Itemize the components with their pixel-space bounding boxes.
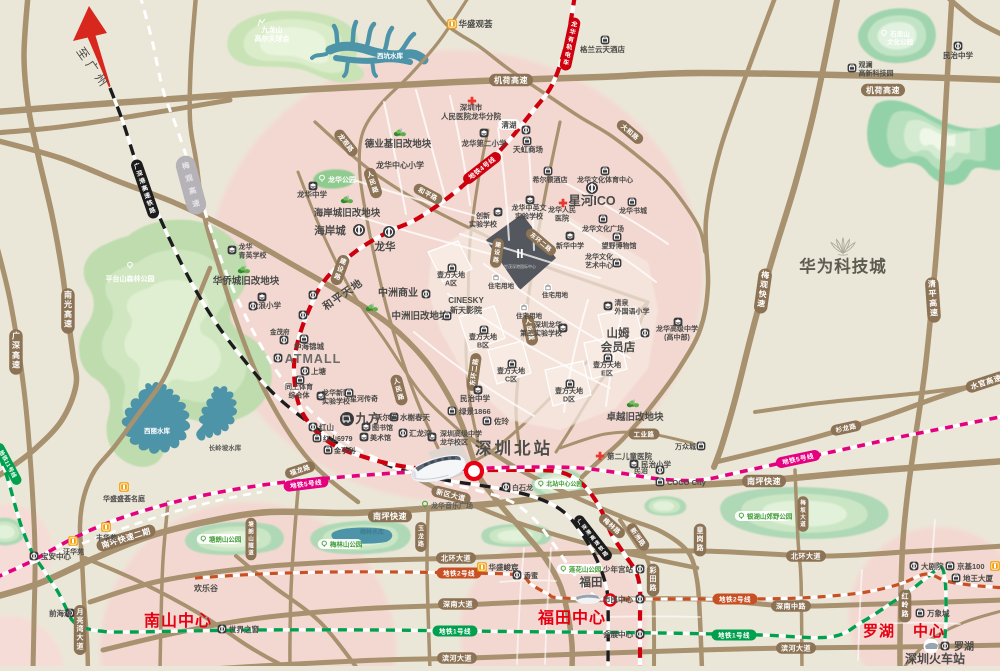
svg-text:世茂深港国际中心: 世茂深港国际中心 [504,263,536,269]
svg-text:速: 速 [930,307,939,318]
svg-text:福田: 福田 [579,575,603,589]
svg-text:CINESKY新天影院: CINESKY新天影院 [448,296,484,315]
svg-text:中海锦城: 中海锦城 [294,341,324,351]
svg-text:塘朗山公园: 塘朗山公园 [209,534,242,543]
svg-text:隧: 隧 [248,542,254,550]
svg-text:华盛观荟: 华盛观荟 [459,19,494,29]
svg-text:彩: 彩 [649,566,658,575]
svg-text:龙华公园: 龙华公园 [327,175,356,184]
svg-text:希尔顿酒店: 希尔顿酒店 [532,175,568,184]
svg-text:路: 路 [902,609,910,618]
svg-text:龙: 龙 [418,532,424,540]
svg-text:罗湖: 罗湖 [954,640,974,653]
svg-text:望野博物馆: 望野博物馆 [602,241,637,250]
svg-text:田: 田 [650,575,657,583]
svg-text:地王大厦: 地王大厦 [963,573,993,583]
svg-text:莲花山公园: 莲花山公园 [569,564,602,573]
svg-text:少年宫站: 少年宫站 [602,564,633,574]
svg-text:住宅用地: 住宅用地 [516,311,543,320]
svg-text:华盛盛荟名庭: 华盛盛荟名庭 [103,494,146,503]
svg-text:市民中心: 市民中心 [603,594,633,604]
svg-text:中洲旧改地块: 中洲旧改地块 [391,310,449,322]
svg-text:中心: 中心 [913,622,945,640]
svg-text:宝安中心: 宝安中心 [41,551,71,561]
svg-text:佐玲: 佐玲 [493,416,509,426]
svg-text:平台山森林公园: 平台山森林公园 [106,274,155,283]
svg-text:华侨城旧改地块: 华侨城旧改地块 [213,275,280,287]
svg-text:高: 高 [929,298,938,309]
svg-text:华为科技城: 华为科技城 [799,256,887,276]
svg-text:广: 广 [12,331,20,341]
svg-text:岭: 岭 [902,600,909,609]
svg-text:深圳北站: 深圳北站 [475,438,553,458]
svg-text:南坪快速: 南坪快速 [747,476,781,486]
svg-text:星河ICO: 星河ICO [568,193,616,208]
svg-text:朗: 朗 [248,527,254,535]
svg-text:民治: 民治 [634,466,648,475]
svg-text:海岸城旧改地块: 海岸城旧改地块 [314,207,381,219]
svg-text:银湖山郊野公园: 银湖山郊野公园 [747,511,793,520]
svg-text:塘: 塘 [248,520,254,528]
svg-text:滨河大道: 滨河大道 [781,644,811,653]
svg-text:龙华中学: 龙华中学 [297,189,327,199]
svg-text:亮: 亮 [77,616,84,625]
svg-text:地铁2号线: 地铁2号线 [719,594,751,603]
svg-text:格兰云天酒店: 格兰云天酒店 [580,44,625,54]
svg-text:民治中学: 民治中学 [460,393,490,403]
svg-text:月: 月 [76,608,84,616]
svg-text:图书馆: 图书馆 [372,423,393,432]
svg-text:水榭春天: 水榭春天 [400,412,430,422]
svg-text:北环大道: 北环大道 [441,554,471,563]
svg-text:华盛峻宸: 华盛峻宸 [489,562,519,572]
svg-text:坂: 坂 [800,506,806,514]
svg-text:万象城: 万象城 [926,608,950,618]
svg-text:大剧院: 大剧院 [921,561,944,571]
svg-text:龙华: 龙华 [374,240,396,253]
svg-text:金亨利: 金亨利 [333,446,355,455]
svg-text:南: 南 [64,290,72,300]
svg-text:道: 道 [77,641,84,650]
svg-text:光: 光 [63,299,72,309]
svg-text:石忠山文化公园: 石忠山文化公园 [886,29,914,46]
svg-text:绿景1866: 绿景1866 [459,406,491,416]
svg-text:红山6979: 红山6979 [323,434,353,443]
svg-text:路: 路 [650,583,658,592]
svg-text:世界之窗: 世界之窗 [229,624,259,634]
svg-text:清: 清 [928,278,937,289]
svg-text:机荷高速: 机荷高速 [494,75,528,85]
svg-text:汇龙湾: 汇龙湾 [409,428,432,438]
svg-text:西坑水库: 西坑水库 [377,51,404,60]
svg-text:工业路: 工业路 [634,429,655,438]
svg-text:高: 高 [64,309,72,319]
svg-text:德业基旧改地块: 德业基旧改地块 [365,138,432,150]
svg-text:深: 深 [12,340,20,350]
svg-text:湾: 湾 [77,624,84,633]
svg-text:道: 道 [248,549,254,557]
svg-text:长岭坡水库: 长岭坡水库 [209,443,242,452]
svg-text:道: 道 [800,520,806,528]
svg-text:深南中路: 深南中路 [776,602,806,611]
svg-text:卓越旧改地块: 卓越旧改地块 [606,411,664,423]
svg-text:COCO City: COCO City [667,478,707,487]
svg-text:上塘: 上塘 [311,366,326,376]
svg-text:速: 速 [757,298,766,309]
svg-text:玉: 玉 [418,525,424,533]
svg-text:梅: 梅 [800,499,806,507]
svg-text:罗湖: 罗湖 [863,623,895,640]
svg-text:龙华文化体育中心: 龙华文化体育中心 [576,175,633,184]
svg-text:梅林山公园: 梅林山公园 [330,539,363,548]
svg-text:住宅用地: 住宅用地 [542,290,569,299]
svg-text:欢乐谷: 欢乐谷 [193,583,219,593]
svg-text:万众城: 万众城 [674,442,696,451]
svg-text:北环大道: 北环大道 [791,552,821,561]
svg-text:金茂府: 金茂府 [269,327,290,336]
svg-text:梅: 梅 [761,269,770,280]
svg-text:清湖: 清湖 [502,120,517,130]
svg-text:速: 速 [12,359,20,369]
svg-text:红山: 红山 [319,422,334,432]
svg-text:观: 观 [759,280,768,290]
svg-text:机荷高速: 机荷高速 [866,85,900,95]
svg-text:西丽水库: 西丽水库 [144,426,171,435]
svg-text:皇: 皇 [697,526,704,535]
svg-text:岗: 岗 [697,534,704,543]
svg-text:大: 大 [800,513,806,521]
svg-text:住宅用地: 住宅用地 [488,281,515,290]
svg-text:沃尔玛: 沃尔玛 [375,412,398,422]
svg-text:速: 速 [64,318,72,328]
svg-text:南山中心: 南山中心 [144,611,212,630]
svg-text:高: 高 [12,350,20,360]
svg-text:京基100: 京基100 [957,561,985,571]
svg-text:丰华苑: 丰华苑 [96,533,117,542]
svg-text:龙华文化广场: 龙华文化广场 [581,224,624,233]
svg-text:梅林水库: 梅林水库 [360,528,384,536]
svg-text:路: 路 [697,543,705,552]
svg-text:地铁1号线: 地铁1号线 [439,626,471,635]
svg-text:新华中学: 新华中学 [556,241,584,250]
svg-text:前海湾: 前海湾 [49,608,72,618]
svg-text:星河传奇: 星河传奇 [350,394,378,403]
svg-text:滨河大道: 滨河大道 [442,654,472,663]
svg-text:龙华书城: 龙华书城 [618,206,647,215]
svg-text:龙华文化艺术中心: 龙华文化艺术中心 [584,252,613,270]
svg-text:龙华中心小学: 龙华中心小学 [375,160,424,170]
svg-text:白石龙: 白石龙 [512,483,533,492]
svg-text:同上体育综合体: 同上体育综合体 [285,382,313,400]
svg-text:民治中学: 民治中学 [943,50,973,60]
svg-text:地铁2号线: 地铁2号线 [443,568,475,577]
svg-text:海岸城: 海岸城 [314,224,346,237]
svg-text:红: 红 [902,592,909,601]
svg-text:山: 山 [248,534,254,542]
svg-text:深南大道: 深南大道 [443,600,473,609]
svg-text:北站中心公园: 北站中心公园 [546,480,582,488]
svg-text:龙华中英文实验学校: 龙华中英文实验学校 [511,203,548,221]
svg-text:龙华第二小学: 龙华第二小学 [462,138,507,148]
svg-text:路: 路 [418,540,425,548]
svg-text:地铁1号线: 地铁1号线 [718,630,750,639]
svg-text:龙华音乐广场: 龙华音乐广场 [430,501,473,510]
svg-text:美术馆: 美术馆 [370,433,391,442]
svg-text:中洲商业: 中洲商业 [378,286,418,299]
svg-text:大: 大 [77,633,84,642]
svg-text:会展中心: 会展中心 [603,629,633,639]
svg-text:深圳火车站: 深圳火车站 [905,651,965,666]
svg-text:南坪快速: 南坪快速 [373,511,407,521]
svg-text:ATMALL: ATMALL [285,352,341,366]
svg-text:天虹商场: 天虹商场 [513,144,543,154]
svg-text:香蜜: 香蜜 [523,571,538,580]
svg-text:平: 平 [928,289,937,299]
svg-text:福田中心: 福田中心 [537,608,606,627]
